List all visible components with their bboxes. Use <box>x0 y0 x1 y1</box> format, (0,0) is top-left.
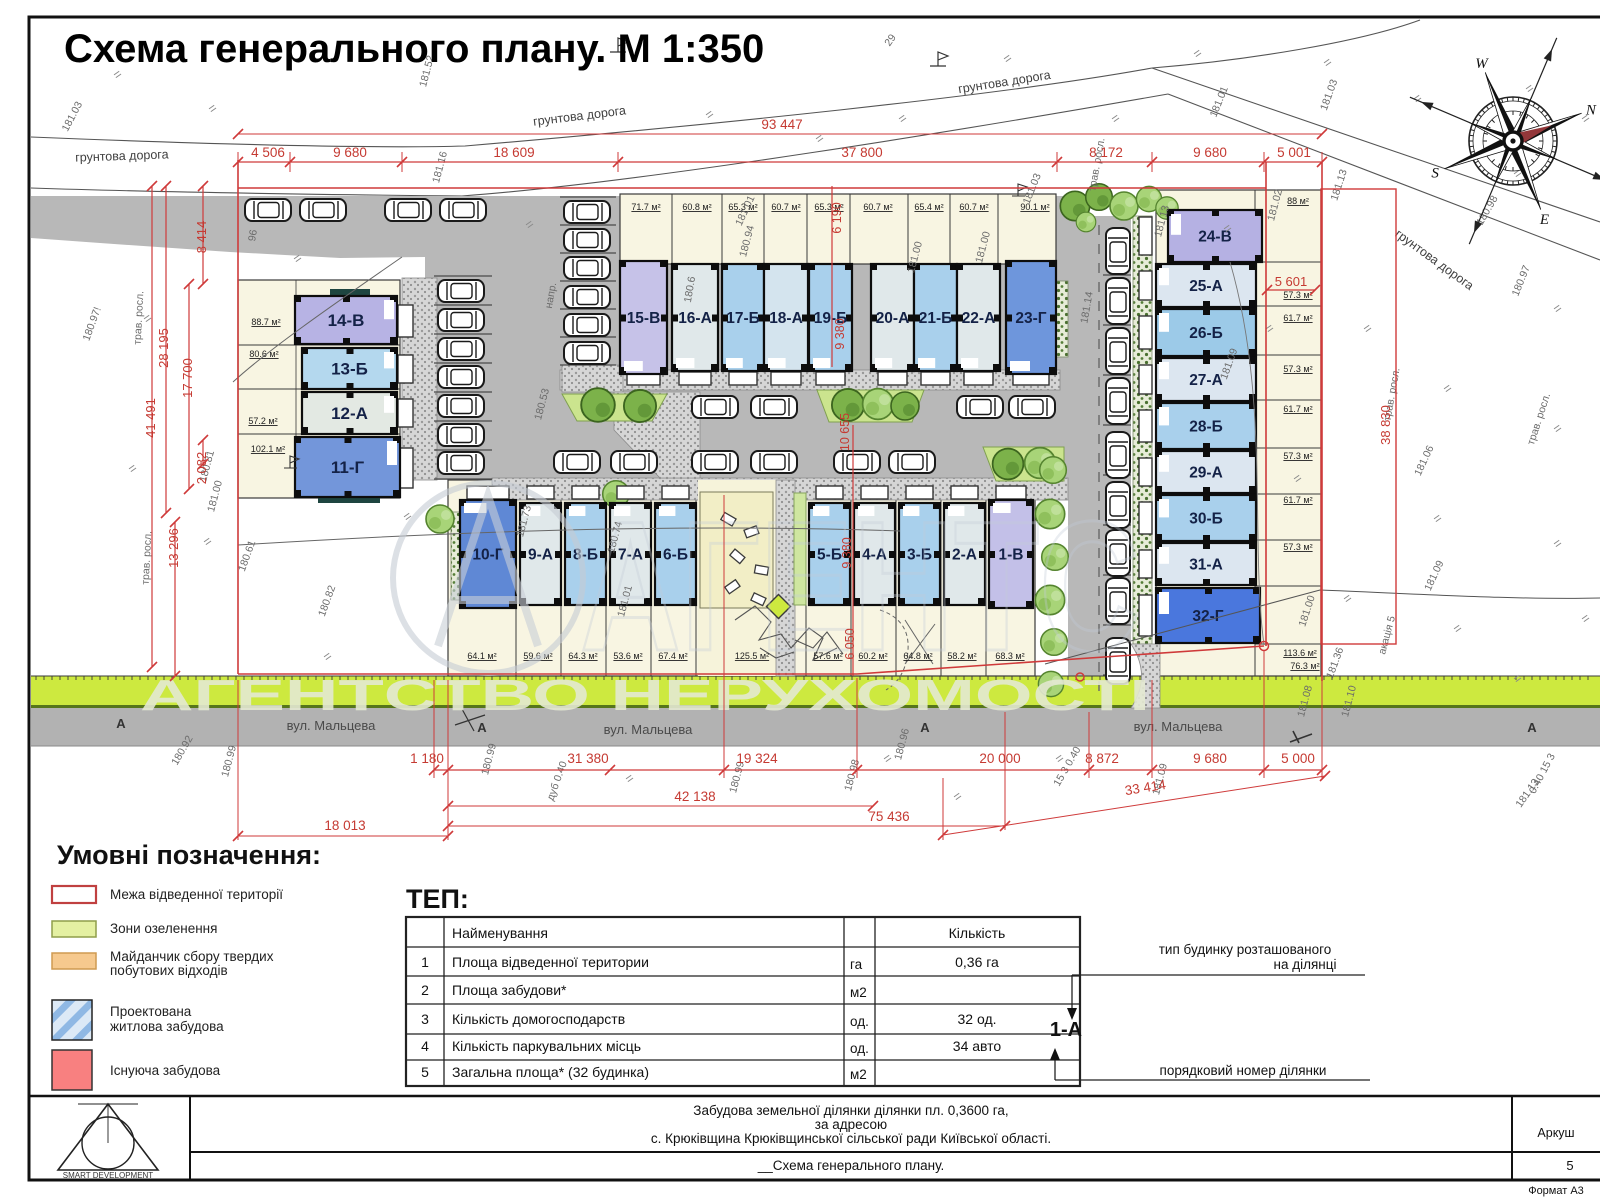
svg-text:88 м²: 88 м² <box>1287 196 1309 206</box>
svg-text:1 180: 1 180 <box>410 751 444 766</box>
svg-text:А: А <box>1527 720 1537 735</box>
svg-text:м2: м2 <box>850 985 867 1000</box>
svg-text:3: 3 <box>421 1011 429 1027</box>
svg-text:8 172: 8 172 <box>1089 145 1123 160</box>
svg-text:E: E <box>1539 212 1549 228</box>
svg-text:Найменування: Найменування <box>452 925 548 941</box>
svg-text:Загальна площа* (32 будинка): Загальна площа* (32 будинка) <box>452 1064 649 1080</box>
svg-text:20 000: 20 000 <box>979 751 1020 766</box>
svg-text:АГЕНТС: АГЕНТС <box>580 484 1140 690</box>
svg-text:5 000: 5 000 <box>1281 751 1315 766</box>
svg-text:32 од.: 32 од. <box>958 1011 997 1027</box>
svg-text:34 авто: 34 авто <box>953 1038 1002 1054</box>
svg-text:8 414: 8 414 <box>194 221 209 254</box>
svg-text:9 680: 9 680 <box>1193 751 1227 766</box>
svg-text:93 447: 93 447 <box>761 117 802 132</box>
svg-text:20-А: 20-А <box>876 310 910 327</box>
svg-text:21-Б: 21-Б <box>919 310 953 327</box>
svg-text:28-Б: 28-Б <box>1189 418 1223 435</box>
svg-text:6 190: 6 190 <box>830 202 844 233</box>
svg-text:14-В: 14-В <box>328 311 365 330</box>
svg-text:__Схема генерального плану.: __Схема генерального плану. <box>757 1158 945 1173</box>
svg-text:Кількість домогосподарств: Кількість домогосподарств <box>452 1011 625 1027</box>
svg-text:АГЕНТСТВО НЕРУХОМОСТІ: АГЕНТСТВО НЕРУХОМОСТІ <box>140 671 1150 720</box>
svg-text:тип будинку розташованого: тип будинку розташованого <box>1159 942 1332 957</box>
svg-text:18 609: 18 609 <box>493 145 534 160</box>
svg-text:порядковий номер ділянки: порядковий номер ділянки <box>1160 1063 1327 1078</box>
svg-text:26-Б: 26-Б <box>1189 325 1223 342</box>
svg-text:57.2 м²: 57.2 м² <box>248 416 277 426</box>
svg-text:61.7 м²: 61.7 м² <box>1283 495 1312 505</box>
svg-text:Існуюча забудова: Існуюча забудова <box>110 1063 221 1078</box>
svg-text:96: 96 <box>246 229 260 243</box>
svg-text:5 001: 5 001 <box>1277 145 1311 160</box>
svg-text:60.7 м²: 60.7 м² <box>863 202 892 212</box>
svg-text:12-А: 12-А <box>331 404 368 423</box>
svg-text:13 296: 13 296 <box>166 528 181 568</box>
svg-text:Кількість паркувальних місць: Кількість паркувальних місць <box>452 1038 641 1054</box>
svg-text:17-Б: 17-Б <box>726 310 760 327</box>
svg-text:9 380: 9 380 <box>833 318 847 349</box>
svg-text:102.1 м²: 102.1 м² <box>251 444 285 454</box>
svg-text:Площа забудови*: Площа забудови* <box>452 982 567 998</box>
svg-text:од.: од. <box>850 1041 869 1056</box>
svg-text:побутових відходів: побутових відходів <box>110 963 228 978</box>
svg-text:4: 4 <box>421 1038 429 1054</box>
svg-text:13-Б: 13-Б <box>331 359 368 378</box>
svg-text:5: 5 <box>1566 1158 1573 1173</box>
svg-text:61.7 м²: 61.7 м² <box>1283 404 1312 414</box>
svg-text:18-А: 18-А <box>769 310 803 327</box>
svg-text:А: А <box>477 720 487 735</box>
svg-text:30-Б: 30-Б <box>1189 510 1223 527</box>
svg-text:1: 1 <box>421 954 429 970</box>
svg-text:60.8 м²: 60.8 м² <box>682 202 711 212</box>
svg-text:25-А: 25-А <box>1189 278 1223 295</box>
svg-text:Зони озеленення: Зони озеленення <box>110 921 217 936</box>
svg-text:15-В: 15-В <box>627 310 661 327</box>
svg-text:Формат А3: Формат А3 <box>1528 1185 1584 1197</box>
svg-text:2: 2 <box>421 982 429 998</box>
svg-text:га: га <box>850 957 863 972</box>
svg-text:Кількість: Кількість <box>949 925 1006 941</box>
svg-text:6 050: 6 050 <box>843 628 857 659</box>
svg-text:5 601: 5 601 <box>1275 274 1308 289</box>
svg-text:вул. Мальцева: вул. Мальцева <box>1134 719 1223 734</box>
svg-text:57.3 м²: 57.3 м² <box>1283 451 1312 461</box>
svg-text:18 013: 18 013 <box>324 818 365 833</box>
svg-text:на ділянці: на ділянці <box>1274 957 1337 972</box>
svg-text:10 655: 10 655 <box>838 413 852 451</box>
svg-text:31-А: 31-А <box>1189 556 1223 573</box>
svg-text:60.7 м²: 60.7 м² <box>771 202 800 212</box>
svg-text:19 324: 19 324 <box>736 751 778 766</box>
svg-text:0,36 га: 0,36 га <box>955 954 999 970</box>
svg-text:вул. Мальцева: вул. Мальцева <box>287 718 376 733</box>
svg-text:88.7 м²: 88.7 м² <box>251 317 280 327</box>
svg-text:житлова забудова: житлова забудова <box>110 1019 224 1034</box>
svg-text:42 138: 42 138 <box>674 789 715 804</box>
svg-text:Аркуш: Аркуш <box>1537 1126 1574 1140</box>
svg-text:28 195: 28 195 <box>156 328 171 368</box>
svg-text:60.7 м²: 60.7 м² <box>959 202 988 212</box>
svg-text:4 506: 4 506 <box>251 145 285 160</box>
svg-text:Схема генерального плану. М 1:: Схема генерального плану. М 1:350 <box>64 27 764 71</box>
svg-text:41 491: 41 491 <box>143 398 158 438</box>
svg-text:5: 5 <box>421 1064 429 1080</box>
svg-text:Умовні позначення:: Умовні позначення: <box>57 840 321 870</box>
svg-text:ТЕП:: ТЕП: <box>406 884 469 914</box>
svg-text:од.: од. <box>850 1014 869 1029</box>
svg-text:80.6 м²: 80.6 м² <box>249 349 278 359</box>
svg-text:57.3 м²: 57.3 м² <box>1283 542 1312 552</box>
svg-text:А: А <box>920 720 930 735</box>
svg-text:38 830: 38 830 <box>1378 405 1393 445</box>
svg-text:9 680: 9 680 <box>333 145 367 160</box>
svg-text:17 700: 17 700 <box>180 358 195 398</box>
svg-text:71.7 м²: 71.7 м² <box>631 202 660 212</box>
svg-text:Межа відведенної території: Межа відведенної території <box>110 887 283 902</box>
svg-text:9 680: 9 680 <box>1193 145 1227 160</box>
svg-text:37 800: 37 800 <box>841 145 882 160</box>
svg-text:32-Г: 32-Г <box>1192 608 1223 625</box>
svg-text:31 380: 31 380 <box>567 751 608 766</box>
svg-text:64.1 м²: 64.1 м² <box>467 651 496 661</box>
svg-text:8 872: 8 872 <box>1085 751 1119 766</box>
svg-text:9 380: 9 380 <box>840 537 854 568</box>
svg-text:29-А: 29-А <box>1189 464 1223 481</box>
svg-text:9-А: 9-А <box>528 546 553 563</box>
svg-text:10-Г: 10-Г <box>472 546 503 563</box>
svg-text:N: N <box>1585 103 1597 119</box>
svg-text:м2: м2 <box>850 1067 867 1082</box>
svg-text:вул. Мальцева: вул. Мальцева <box>604 722 693 737</box>
svg-text:23-Г: 23-Г <box>1015 310 1046 327</box>
svg-text:11-Г: 11-Г <box>331 458 365 477</box>
svg-text:1-А: 1-А <box>1050 1019 1082 1041</box>
svg-text:65.4 м²: 65.4 м² <box>914 202 943 212</box>
svg-text:27-А: 27-А <box>1189 372 1223 389</box>
svg-text:22-А: 22-А <box>962 310 996 327</box>
svg-text:75 436: 75 436 <box>868 809 909 824</box>
svg-text:16-А: 16-А <box>678 310 712 327</box>
svg-text:с. Крюківщина Крюківщинської с: с. Крюківщина Крюківщинської сільської р… <box>651 1131 1051 1146</box>
svg-text:S: S <box>1431 165 1439 181</box>
svg-text:57.3 м²: 57.3 м² <box>1283 364 1312 374</box>
svg-text:W: W <box>1475 56 1489 72</box>
svg-text:76.3 м²: 76.3 м² <box>1290 661 1319 671</box>
svg-text:61.7 м²: 61.7 м² <box>1283 313 1312 323</box>
svg-text:Майданчик сбору твердих: Майданчик сбору твердих <box>110 949 274 964</box>
svg-text:А: А <box>116 716 126 731</box>
svg-text:Забудова земельної ділянки ді: Забудова земельної ділянки ділянки пл. 0… <box>693 1103 1008 1118</box>
svg-text:57.3 м²: 57.3 м² <box>1283 290 1312 300</box>
svg-text:Площа відведенної територии: Площа відведенної територии <box>452 954 649 970</box>
svg-text:Проектована: Проектована <box>110 1004 192 1019</box>
svg-text:2 082: 2 082 <box>194 452 209 485</box>
svg-text:113.6 м²: 113.6 м² <box>1283 648 1317 658</box>
svg-text:за адресою: за адресою <box>815 1117 887 1132</box>
